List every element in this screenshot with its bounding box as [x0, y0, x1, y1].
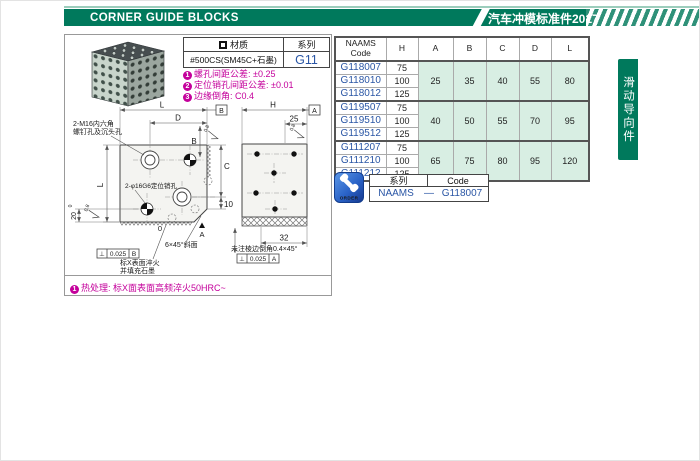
edition-label: 汽车冲模标准件2017 [488, 10, 599, 27]
part-code-link[interactable]: G118007 [335, 61, 386, 75]
part-code-link[interactable]: G119512 [335, 128, 386, 142]
dim-10: 10 [224, 200, 233, 209]
dim-a-cell: 40 [418, 101, 453, 141]
product-panel: 材质 系列 #500CS(SM45C+石墨) G11 1螺孔间距公差: ±0.2… [64, 34, 332, 296]
dim-L-left: L [96, 182, 105, 187]
tolerance-frame-B: ⊥ 0.025 B [97, 249, 139, 258]
dim-h-cell: 75 [386, 141, 418, 155]
dim-d-cell: 70 [519, 101, 551, 141]
front-view: L B D B C 10 L 20 0 [68, 101, 233, 276]
order-example-table: 系列 Code NAAMS — G118007 [369, 174, 489, 202]
heat-treatment-note: 1热处理: 标X面表面高频淬火50HRC~ [70, 281, 226, 294]
material-value: #500CS(SM45C+石墨) [184, 52, 284, 68]
order-table-header: 系列 Code [370, 175, 488, 187]
note-text: 热处理: 标X面表面高频淬火50HRC~ [81, 283, 226, 293]
dim-d-cell: 95 [519, 141, 551, 181]
note-number-badge: 1 [70, 285, 79, 294]
part-code-link[interactable]: G118012 [335, 88, 386, 102]
note-line: 1螺孔间距公差: ±0.25 [183, 69, 293, 80]
dim-h-cell: 100 [386, 75, 418, 88]
order-button[interactable]: ORDER [334, 172, 364, 203]
hardening-note: 标X表面淬火 [120, 258, 160, 267]
order-code-value: G118007 [436, 187, 488, 201]
col-header-code: NAAMS Code [335, 37, 386, 61]
note-text: 螺孔间距公差: ±0.25 [194, 69, 275, 79]
screw-hole-label: 螺钉孔及沉头孔 [73, 127, 122, 136]
table-row: G118007 75 25 35 40 55 80 [335, 61, 589, 75]
spec-table: NAAMS Code H A B C D L G118007 75 25 35 … [334, 36, 590, 182]
part-code-link[interactable]: G119510 [335, 115, 386, 128]
order-separator: — [422, 187, 436, 201]
header-stripes [586, 9, 700, 26]
dim-32: 32 [280, 234, 289, 243]
part-code-link[interactable]: G111210 [335, 155, 386, 168]
dim-b-cell: 35 [453, 61, 486, 101]
table-row: G111207 75 65 75 80 95 120 [335, 141, 589, 155]
dim-a-cell: 25 [418, 61, 453, 101]
dim-C: C [224, 162, 230, 171]
material-label: 材质 [230, 40, 248, 50]
series-header: 系列 [284, 38, 330, 52]
svg-text:0.8: 0.8 [203, 124, 211, 133]
dim-h-cell: 100 [386, 155, 418, 168]
dim-B: B [191, 137, 196, 146]
material-header: 材质 [184, 38, 284, 52]
sidebar-tab-sliding-guides[interactable]: 滑动导向件 [618, 59, 638, 160]
roughness-symbol: 0.8 [82, 204, 102, 220]
material-icon [219, 41, 227, 49]
dim-L-top: L [160, 101, 165, 110]
tolerance-frame-A: ⊥ 0.025 A [237, 254, 279, 263]
dim-20-tolerance: 0 [68, 204, 74, 207]
catalog-page: CORNER GUIDE BLOCKS 汽车冲模标准件2017 滑动导向件 [0, 0, 700, 461]
technical-drawing: L B D B C 10 L 20 0 [65, 97, 333, 275]
order-series-header: 系列 [370, 175, 428, 187]
note-number-badge: 2 [183, 82, 192, 91]
dim-h-cell: 75 [386, 61, 418, 75]
header-bar: CORNER GUIDE BLOCKS 汽车冲模标准件2017 [64, 9, 700, 26]
dim-25: 25 [290, 115, 299, 124]
tolerance-value: 0.025 [110, 251, 127, 258]
order-code-header: Code [428, 175, 488, 187]
series-value: G11 [284, 52, 330, 68]
dim-c-cell: 40 [486, 61, 519, 101]
header-accent-line [64, 6, 700, 8]
dim-h-cell: 125 [386, 128, 418, 142]
col-header-a: A [418, 37, 453, 61]
tolerance-datum: A [272, 256, 277, 263]
dim-h-cell: 75 [386, 101, 418, 115]
page-title: CORNER GUIDE BLOCKS [90, 12, 239, 24]
col-header-h: H [386, 37, 418, 61]
part-code-link[interactable]: G111207 [335, 141, 386, 155]
order-table-body: NAAMS — G118007 [370, 187, 488, 201]
table-row: G119507 75 40 50 55 70 95 [335, 101, 589, 115]
dim-l-cell: 80 [551, 61, 589, 101]
side-view: H A 25 0.8 32 未注棱边倒角0.4×45° [231, 101, 320, 264]
datum-flag-B: B [219, 108, 224, 115]
dim-l-cell: 95 [551, 101, 589, 141]
order-series-value: NAAMS [370, 187, 422, 201]
note-number-badge: 1 [183, 71, 192, 80]
tolerance-datum: B [132, 251, 136, 258]
tolerance-value: 0.025 [250, 256, 267, 263]
part-code-link[interactable]: G118010 [335, 75, 386, 88]
panel-divider [65, 275, 331, 276]
dim-h-cell: 100 [386, 115, 418, 128]
dim-h-cell: 125 [386, 88, 418, 102]
dim-20: 20 [71, 212, 78, 220]
col-header-l: L [551, 37, 589, 61]
phone-icon: ORDER [335, 173, 363, 202]
note-line: 2定位销孔间距公差: ±0.01 [183, 80, 293, 91]
bevel-label: 6×45°斜面 [165, 240, 198, 249]
col-header-b: B [453, 37, 486, 61]
spec-table-header-row: NAAMS Code H A B C D L [335, 37, 589, 61]
screw-hole-label: 2-M16内六角 [73, 119, 114, 128]
part-code-link[interactable]: G119507 [335, 101, 386, 115]
note-text: 定位销孔间距公差: ±0.01 [194, 80, 293, 90]
dim-D: D [175, 114, 181, 123]
col-header-d: D [519, 37, 551, 61]
order-label: ORDER [340, 196, 359, 201]
hardening-note: 并填充石墨 [120, 266, 155, 275]
tolerance-symbol: ⊥ [239, 256, 245, 263]
dim-b-cell: 50 [453, 101, 486, 141]
roughness-symbol: 0.8 [287, 123, 307, 140]
datum-A-label: A [199, 230, 204, 239]
col-header-c: C [486, 37, 519, 61]
datum-flag-A: A [312, 108, 317, 115]
chamfer-note: 未注棱边倒角0.4×45° [231, 244, 298, 253]
dim-c-cell: 80 [486, 141, 519, 181]
material-table: 材质 系列 #500CS(SM45C+石墨) G11 [183, 37, 330, 68]
tolerance-symbol: ⊥ [99, 251, 105, 258]
zero-reference: 0 [158, 224, 162, 233]
dowel-hole-label: 2-φ16G6定位销孔 [125, 181, 177, 190]
svg-text:0.8: 0.8 [289, 123, 297, 132]
dim-d-cell: 55 [519, 61, 551, 101]
dim-l-cell: 120 [551, 141, 589, 181]
roughness-symbol: 0.8 [201, 124, 221, 141]
dim-H: H [270, 101, 276, 110]
dim-c-cell: 55 [486, 101, 519, 141]
